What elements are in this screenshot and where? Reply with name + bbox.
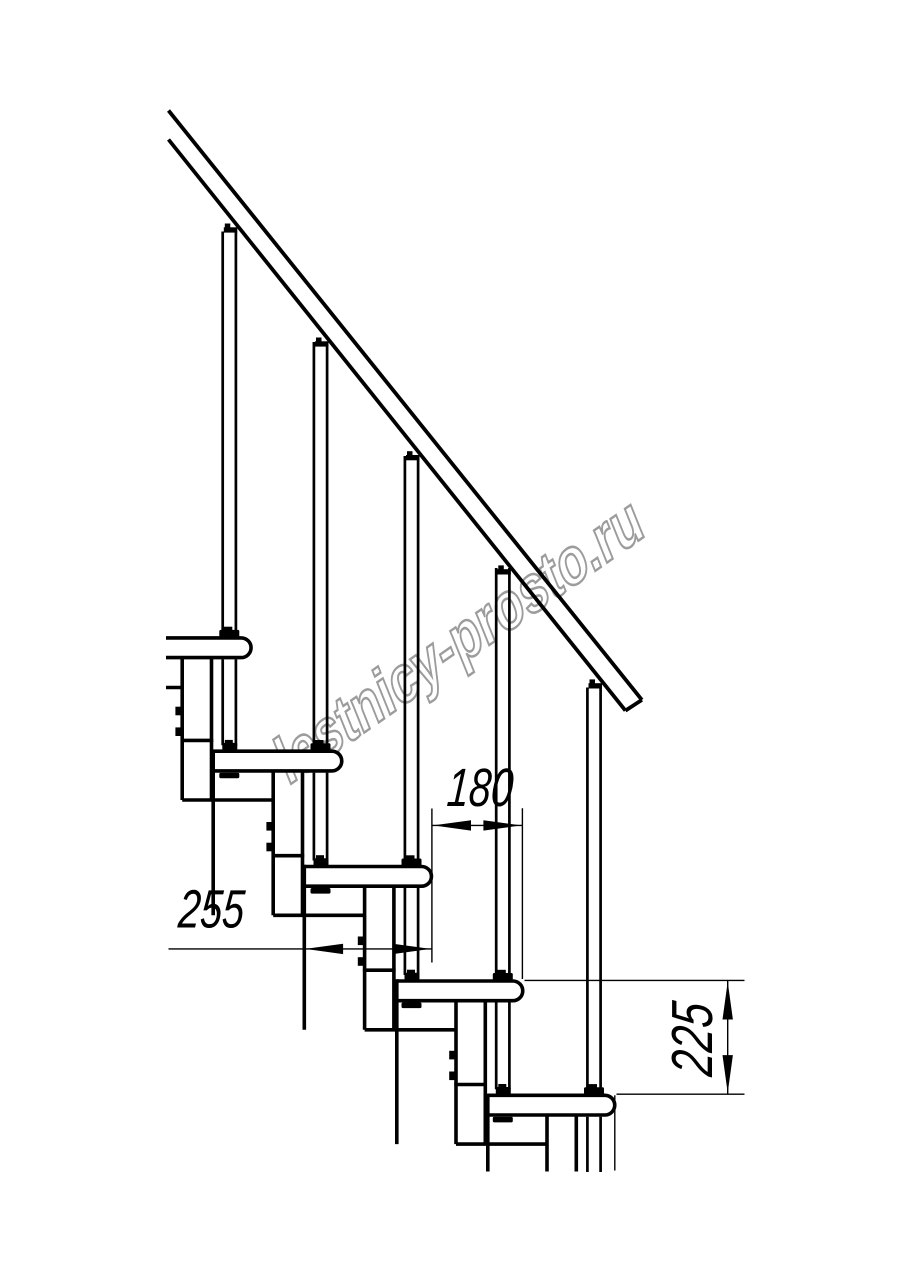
svg-text:255: 255 <box>176 880 248 940</box>
svg-text:225: 225 <box>659 998 724 1079</box>
svg-text:180: 180 <box>445 758 515 818</box>
